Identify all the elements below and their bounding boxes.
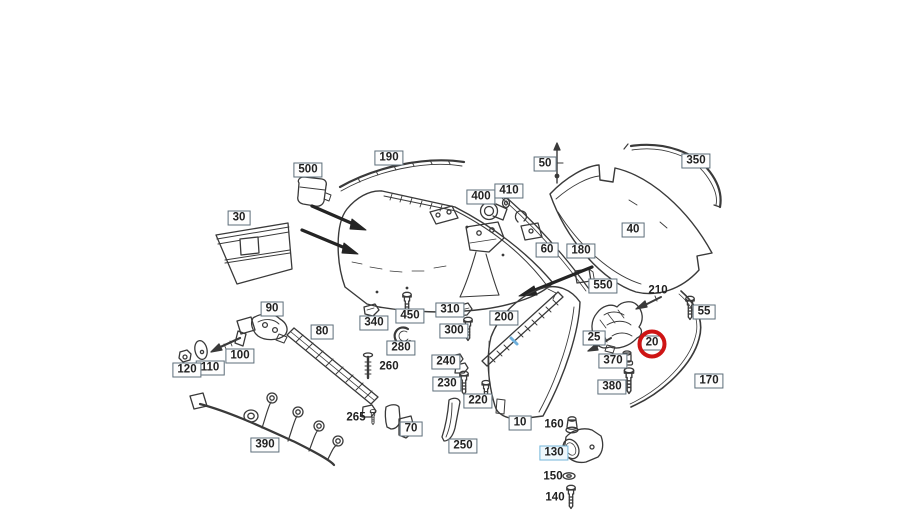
part-callout-380[interactable]: 380 xyxy=(597,380,626,395)
part-callout-200[interactable]: 200 xyxy=(489,311,518,326)
part-callout-80[interactable]: 80 xyxy=(311,325,334,340)
part-callout-10[interactable]: 10 xyxy=(509,416,532,431)
part-callout-70[interactable]: 70 xyxy=(400,422,423,437)
part-callout-55[interactable]: 55 xyxy=(693,305,716,320)
part-callout-310[interactable]: 310 xyxy=(435,303,464,318)
part-callout-390[interactable]: 390 xyxy=(250,438,279,453)
part-callout-220[interactable]: 220 xyxy=(463,394,492,409)
part-callout-40[interactable]: 40 xyxy=(622,223,645,238)
part-callout-100[interactable]: 100 xyxy=(225,349,254,364)
callout-layer: 5001905035030400410406018055021055252037… xyxy=(0,0,897,527)
part-callout-240[interactable]: 240 xyxy=(431,355,460,370)
part-callout-150[interactable]: 150 xyxy=(543,471,562,484)
part-callout-20[interactable]: 20 xyxy=(641,336,664,351)
part-callout-260[interactable]: 260 xyxy=(379,361,398,374)
part-callout-370[interactable]: 370 xyxy=(598,354,627,369)
part-callout-410[interactable]: 410 xyxy=(494,184,523,199)
part-callout-140[interactable]: 140 xyxy=(545,492,564,505)
part-callout-500[interactable]: 500 xyxy=(293,163,322,178)
part-callout-190[interactable]: 190 xyxy=(374,151,403,166)
part-callout-340[interactable]: 340 xyxy=(359,316,388,331)
part-callout-50[interactable]: 50 xyxy=(534,157,557,172)
part-callout-25[interactable]: 25 xyxy=(583,331,606,346)
part-callout-300[interactable]: 300 xyxy=(439,324,468,339)
part-callout-60[interactable]: 60 xyxy=(536,243,559,258)
part-callout-130[interactable]: 130 xyxy=(539,446,568,461)
part-callout-30[interactable]: 30 xyxy=(228,211,251,226)
part-callout-280[interactable]: 280 xyxy=(386,341,415,356)
part-callout-160[interactable]: 160 xyxy=(544,419,563,432)
part-callout-230[interactable]: 230 xyxy=(432,377,461,392)
part-callout-265[interactable]: 265 xyxy=(346,412,365,425)
part-callout-450[interactable]: 450 xyxy=(395,309,424,324)
part-callout-250[interactable]: 250 xyxy=(448,439,477,454)
parts-diagram-canvas: 5001905035030400410406018055021055252037… xyxy=(0,0,897,527)
part-callout-90[interactable]: 90 xyxy=(261,302,284,317)
part-callout-400[interactable]: 400 xyxy=(466,190,495,205)
part-callout-180[interactable]: 180 xyxy=(566,244,595,259)
part-callout-210[interactable]: 210 xyxy=(648,285,667,298)
part-callout-350[interactable]: 350 xyxy=(681,154,710,169)
part-callout-170[interactable]: 170 xyxy=(694,374,723,389)
part-callout-550[interactable]: 550 xyxy=(588,279,617,294)
part-callout-120[interactable]: 120 xyxy=(172,363,201,378)
